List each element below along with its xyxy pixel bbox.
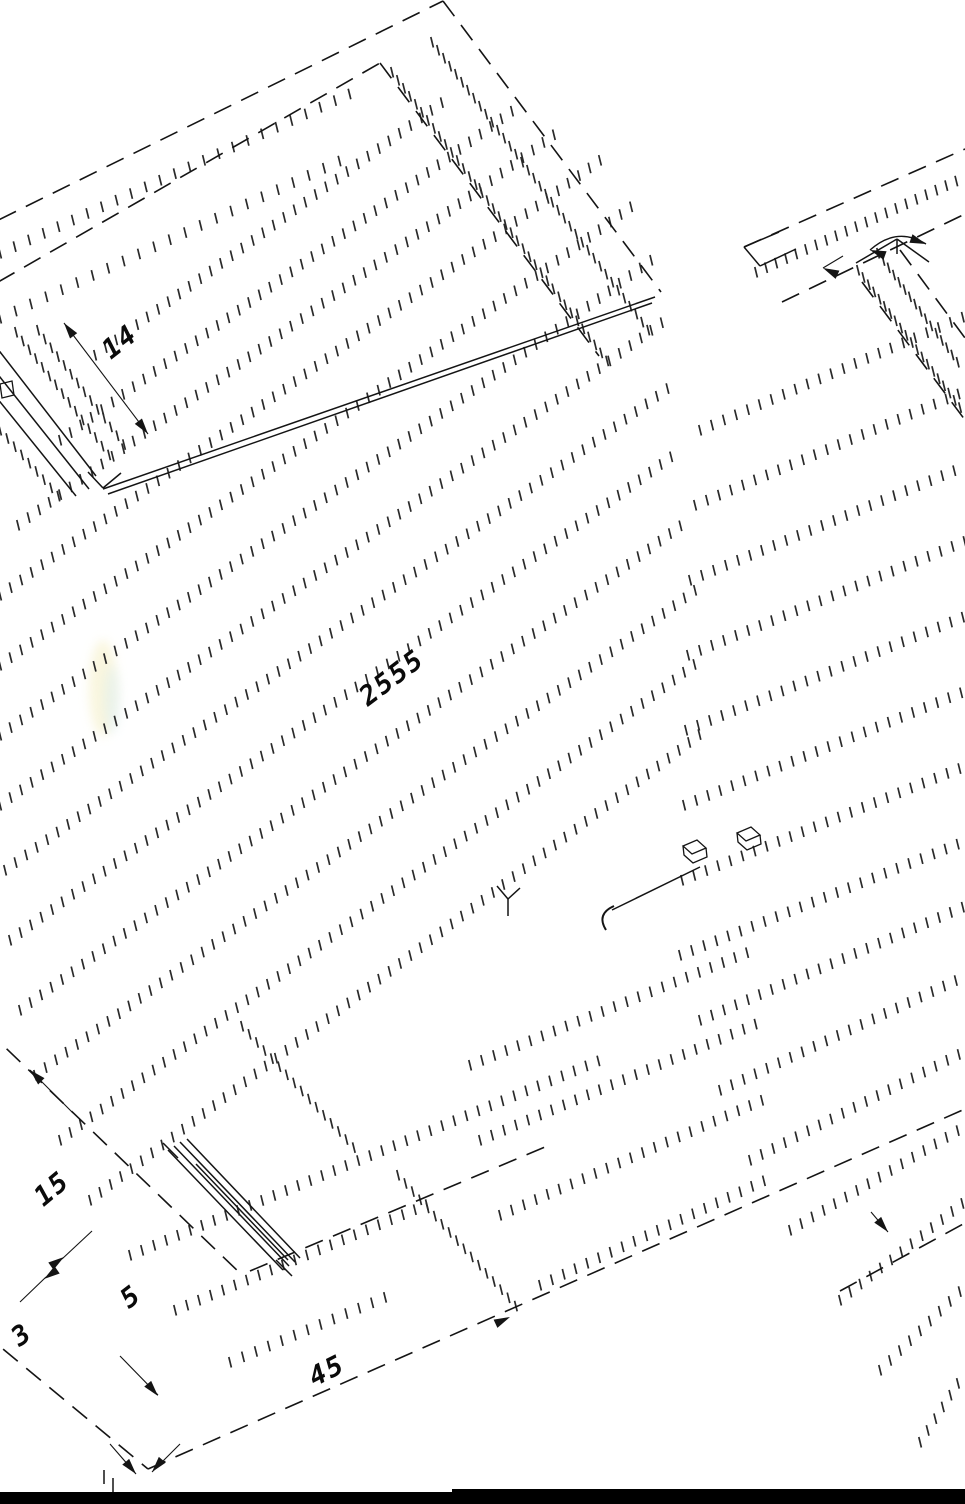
hidden-edge-layer xyxy=(0,1,965,1469)
hatch-texture-layer xyxy=(0,37,965,1448)
footer-black-bars xyxy=(0,1489,965,1504)
isometric-cabinet-technical-drawing xyxy=(0,0,965,1504)
drawing-canvas: 14 2555 15 5 3 45 xyxy=(0,0,965,1504)
dimension-arrow-layer xyxy=(20,234,928,1477)
